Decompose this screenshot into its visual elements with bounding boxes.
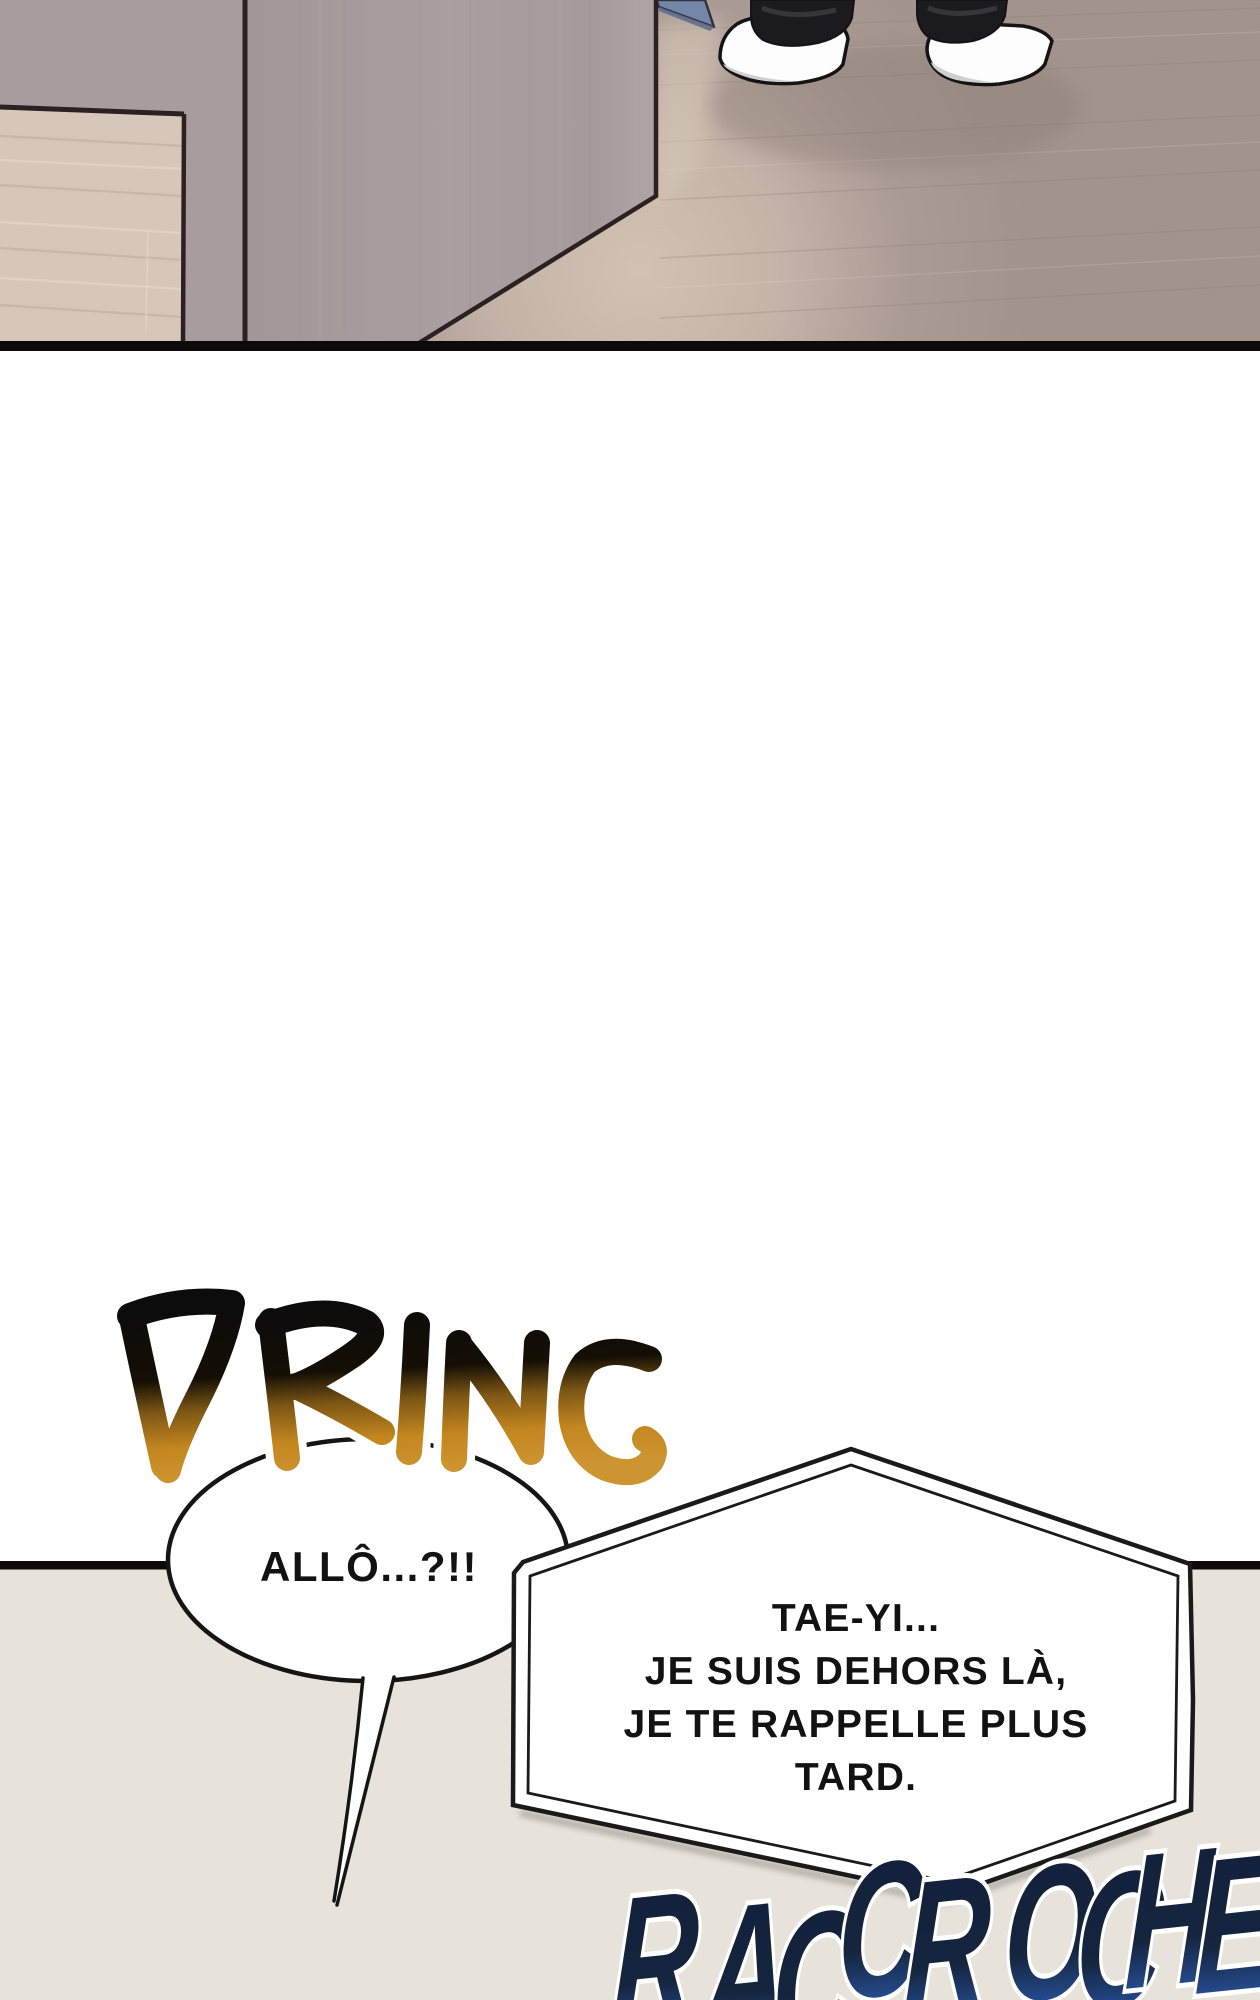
svg-text:ALLÔ...?!!: ALLÔ...?!! [260, 1542, 478, 1590]
svg-text:R: R [901, 1833, 994, 2000]
svg-text:JE SUIS DEHORS LÀ,: JE SUIS DEHORS LÀ, [645, 1649, 1068, 1693]
svg-text:E: E [1193, 1811, 1260, 2000]
svg-text:R: R [609, 1849, 702, 2000]
svg-text:TARD.: TARD. [795, 1756, 917, 1799]
svg-text:TAE-YI...: TAE-YI... [772, 1597, 940, 1640]
svg-text:JE TE RAPPELLE PLUS: JE TE RAPPELLE PLUS [624, 1703, 1089, 1746]
